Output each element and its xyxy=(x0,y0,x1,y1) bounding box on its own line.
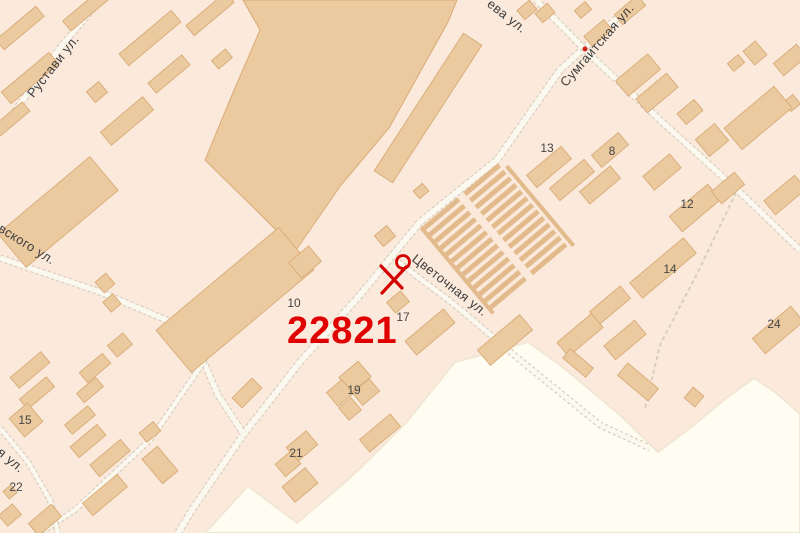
building xyxy=(557,314,603,357)
building xyxy=(752,306,800,353)
garage-rows-block xyxy=(420,159,575,315)
building xyxy=(727,55,744,72)
building xyxy=(643,154,681,190)
building xyxy=(591,133,628,168)
building xyxy=(1,52,58,103)
building xyxy=(86,81,107,102)
building xyxy=(0,6,44,49)
building xyxy=(148,55,190,93)
building xyxy=(0,504,21,526)
building xyxy=(743,41,767,65)
poi-dot xyxy=(583,47,588,52)
building xyxy=(405,309,455,355)
building xyxy=(695,124,728,157)
building xyxy=(614,0,645,25)
building xyxy=(119,10,181,65)
building xyxy=(212,49,233,69)
building xyxy=(63,0,110,31)
building xyxy=(9,403,43,437)
building xyxy=(764,175,800,215)
building xyxy=(100,97,153,145)
building xyxy=(413,183,429,198)
building xyxy=(387,291,410,313)
building xyxy=(724,86,792,149)
map-graphics xyxy=(0,0,800,533)
building xyxy=(156,228,314,373)
building xyxy=(142,446,178,483)
building xyxy=(684,387,704,407)
building xyxy=(90,439,130,476)
map-canvas[interactable]: 22821 Рустави ул.ева ул.Сумгаитская ул.в… xyxy=(0,0,800,533)
building xyxy=(186,0,234,36)
building xyxy=(374,225,395,246)
building xyxy=(574,2,591,19)
building xyxy=(232,378,262,408)
building xyxy=(630,238,696,298)
building xyxy=(108,333,133,357)
building xyxy=(618,363,659,401)
building xyxy=(604,320,646,360)
building xyxy=(0,157,118,268)
building xyxy=(139,422,161,443)
building xyxy=(773,44,800,76)
building xyxy=(677,100,703,125)
building xyxy=(3,485,17,499)
